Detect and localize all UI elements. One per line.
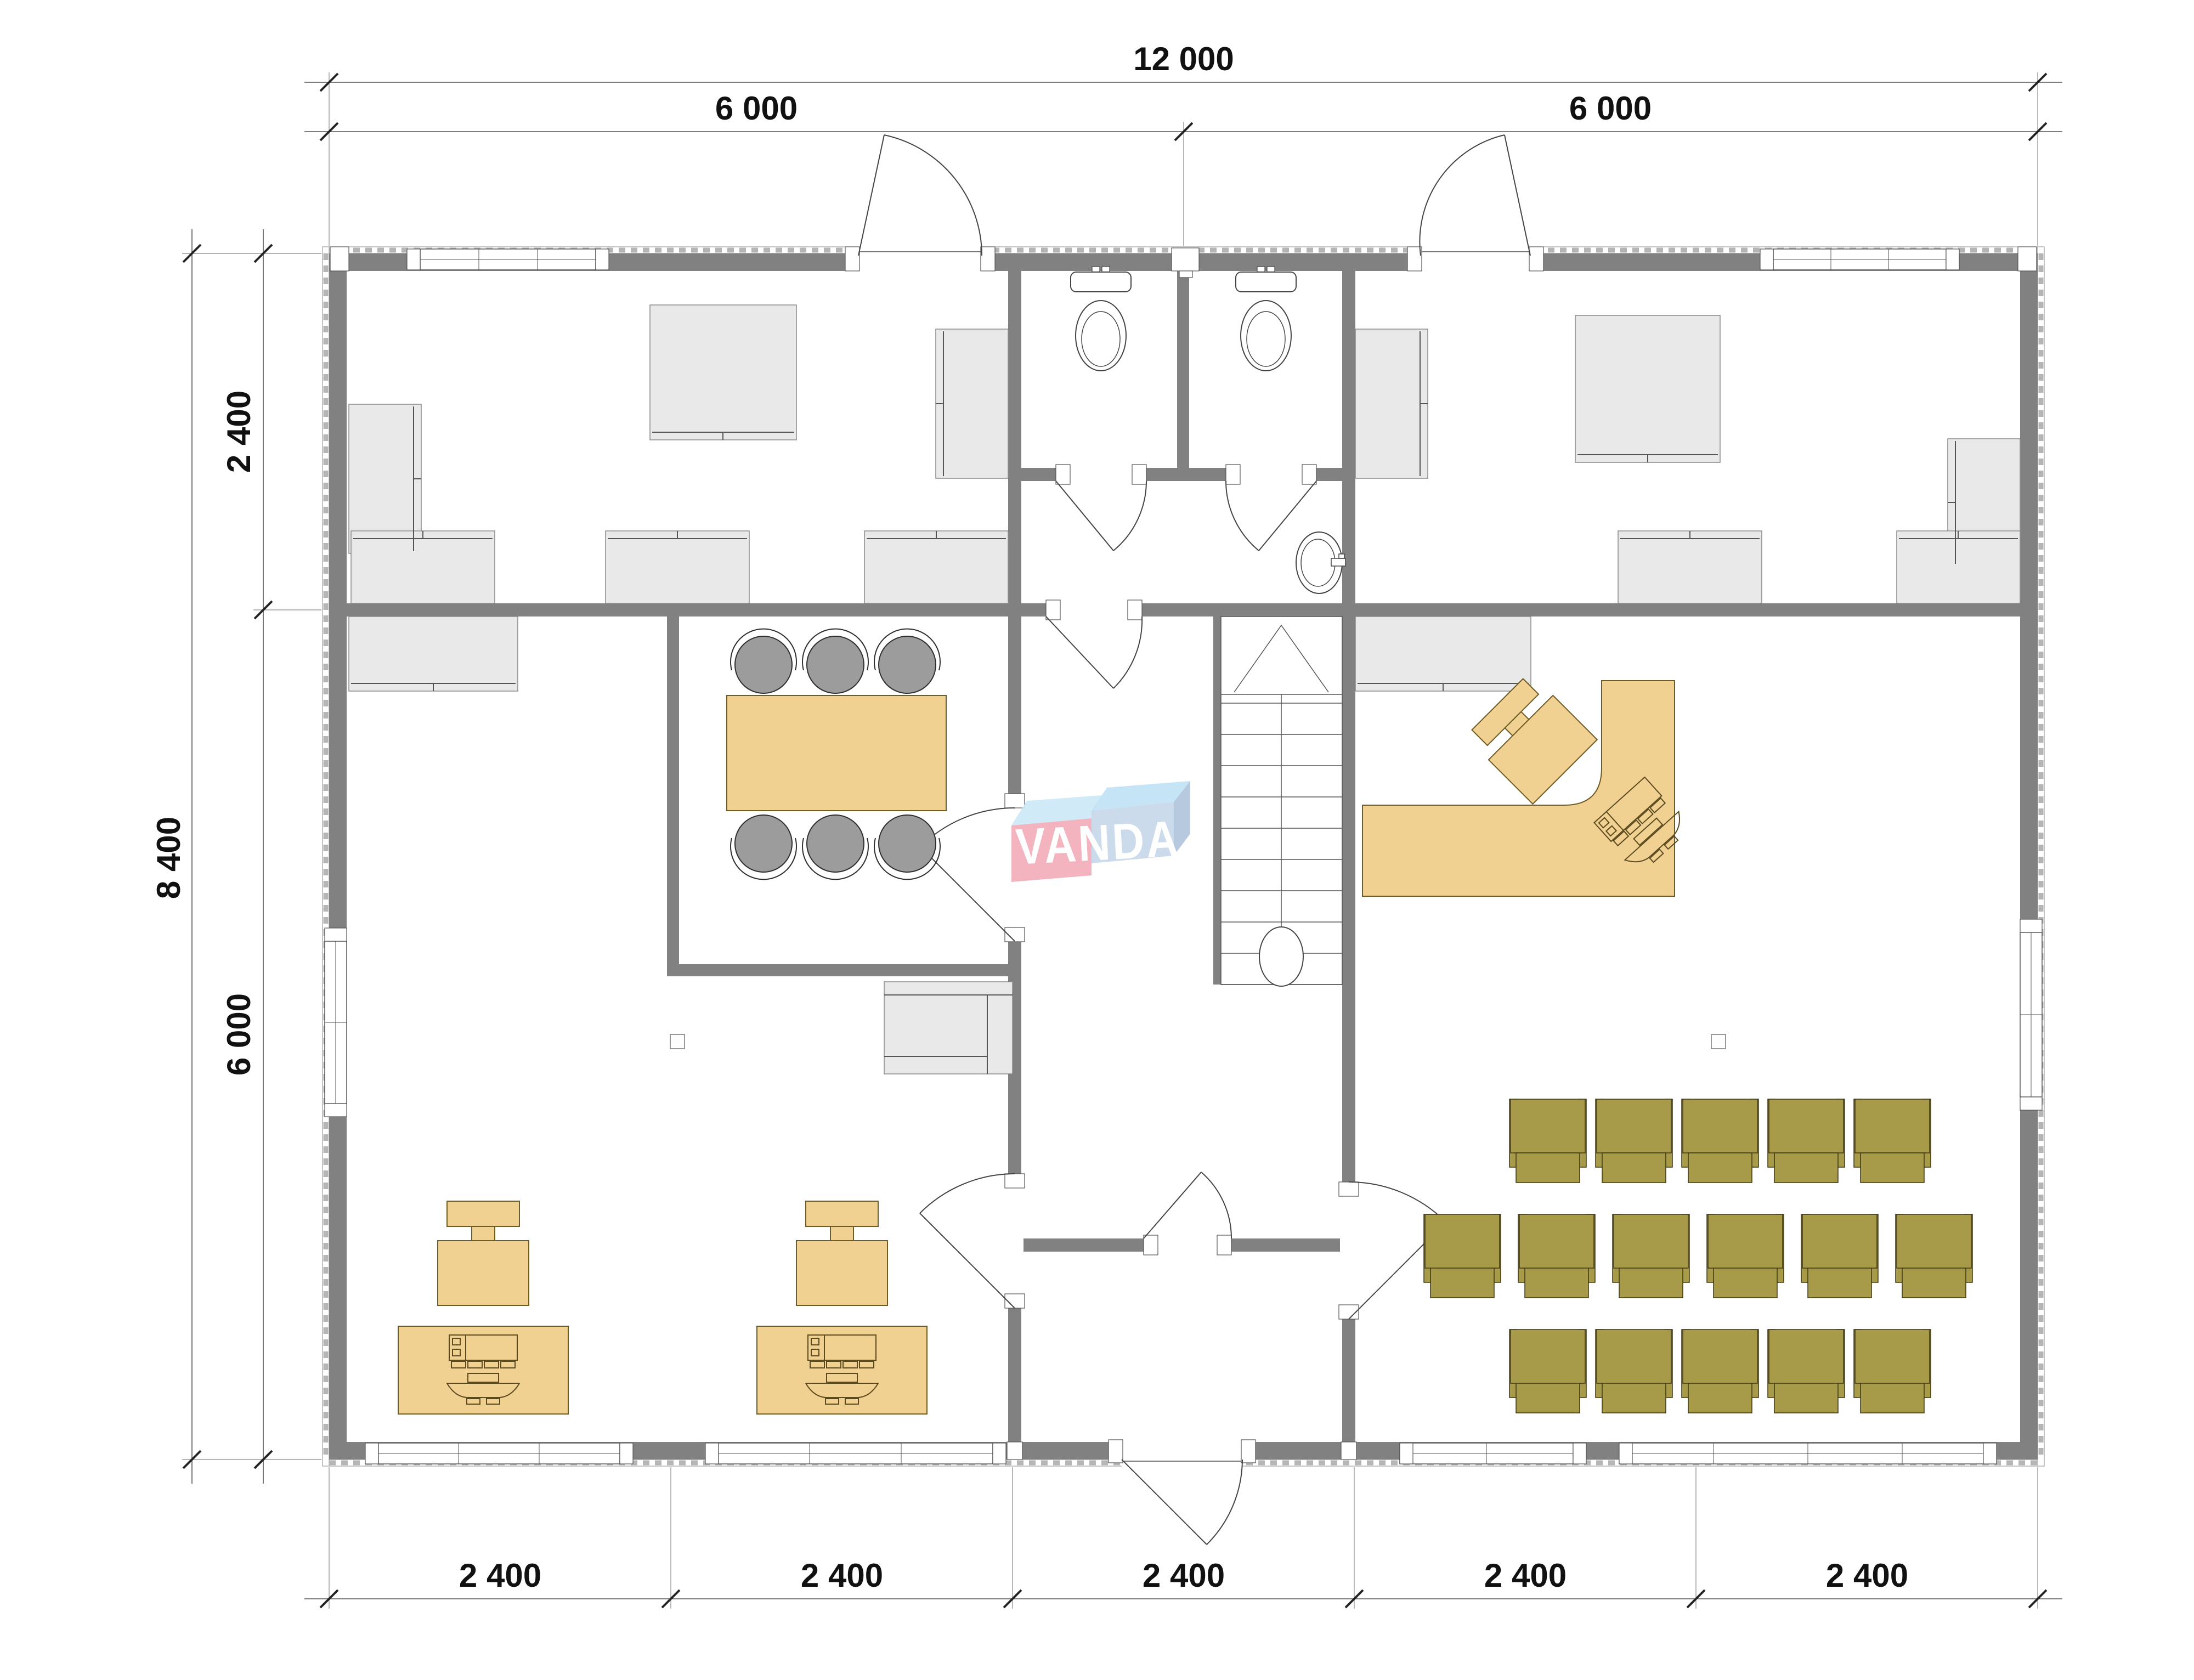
wall-left <box>329 253 347 1460</box>
stairs <box>1221 616 1342 986</box>
audience-chair <box>1682 1099 1758 1183</box>
door-exterior-left-office <box>858 135 982 256</box>
door-exterior-right-office <box>1420 135 1530 256</box>
dim-top-total: 12 000 <box>1133 41 1234 77</box>
chair-backrest <box>1511 1099 1585 1153</box>
watermark: VANDA <box>1011 781 1190 882</box>
dim-bottom-5: 2 400 <box>1826 1557 1908 1594</box>
chair-backrest <box>1769 1330 1844 1383</box>
chair-seat <box>1619 1268 1683 1298</box>
desk <box>398 1326 568 1414</box>
audience-chair <box>1596 1330 1672 1413</box>
chair-backrest <box>1802 1214 1877 1268</box>
chair-seat <box>1808 1268 1871 1298</box>
desk <box>864 531 1008 603</box>
door-left-room <box>920 1174 1015 1308</box>
chair-seat <box>438 1241 529 1305</box>
door-wc-left <box>1056 481 1146 551</box>
meeting-chair <box>802 629 868 693</box>
audience-chair <box>1801 1214 1878 1298</box>
stair-landing-post <box>1259 927 1303 986</box>
desk <box>349 616 518 691</box>
desk <box>351 531 495 603</box>
dim-top-right: 6 000 <box>1569 90 1652 127</box>
desk <box>606 531 749 603</box>
sink <box>1296 532 1345 593</box>
chair-seat <box>1516 1153 1580 1183</box>
dim-bottom-3: 2 400 <box>1143 1557 1225 1594</box>
computer-workstations <box>398 1201 927 1414</box>
audience-chair <box>1613 1214 1689 1298</box>
toilet <box>1236 267 1296 371</box>
chair-seat <box>1774 1383 1838 1413</box>
meeting-chair <box>874 815 940 879</box>
desk <box>650 305 796 440</box>
watermark-text: VANDA <box>1014 811 1181 875</box>
dim-bottom-2: 2 400 <box>801 1557 883 1594</box>
floor-plan-sheet: VANDA 12 000 6 000 6 000 8 400 2 400 6 <box>0 0 2194 1680</box>
audience-chair <box>1768 1330 1845 1413</box>
wall-wc-middle <box>1177 271 1189 481</box>
audience-chair <box>1509 1099 1586 1183</box>
chair-seat <box>1774 1153 1838 1183</box>
audience-chair <box>1854 1330 1931 1413</box>
chair-seat <box>1861 1383 1924 1413</box>
chair-seat <box>1516 1383 1580 1413</box>
chair-backrest <box>1855 1099 1930 1153</box>
meeting-table <box>727 695 946 811</box>
door-lobby-hall <box>1046 616 1142 688</box>
audience-chair <box>1682 1330 1758 1413</box>
reception-chair <box>1465 672 1597 804</box>
chair-backrest <box>1708 1214 1783 1268</box>
chair-seat <box>1714 1268 1777 1298</box>
chair-seat <box>1430 1268 1494 1298</box>
audience-chair <box>1896 1214 1972 1298</box>
wall-meeting-bottom <box>667 964 1021 976</box>
audience-chair <box>1509 1330 1586 1413</box>
chair-backrest <box>1683 1330 1757 1383</box>
desk <box>1897 531 2020 603</box>
audience-chair <box>1707 1214 1784 1298</box>
chair-seat <box>1602 1383 1666 1413</box>
meeting-chair <box>731 629 796 693</box>
chair-backrest <box>1519 1214 1594 1268</box>
wall-mid-horizontal <box>347 603 2020 616</box>
dim-bottom-1: 2 400 <box>459 1557 541 1594</box>
desk <box>757 1326 927 1414</box>
chair-backrest <box>1511 1330 1585 1383</box>
chair-seat <box>1688 1383 1752 1413</box>
workstation <box>757 1201 927 1414</box>
chair-seat <box>1525 1268 1588 1298</box>
chair-backrest <box>806 1201 878 1226</box>
door-vestibule <box>1144 1172 1231 1238</box>
meeting-chair <box>802 815 868 879</box>
toilet <box>1071 267 1131 371</box>
audience-chair <box>1596 1099 1672 1183</box>
desk <box>936 329 1008 478</box>
audience-chair <box>1768 1099 1845 1183</box>
meeting-chair <box>731 815 796 879</box>
floor-plan-drawing: VANDA 12 000 6 000 6 000 8 400 2 400 6 <box>0 0 2194 1680</box>
desk <box>1618 531 1762 603</box>
chair-seat <box>796 1241 887 1305</box>
chair-seat <box>1688 1153 1752 1183</box>
chair-backrest <box>1597 1330 1671 1383</box>
chair-backrest <box>447 1201 519 1226</box>
wall-stair-thin <box>1213 616 1221 985</box>
audience-chair <box>1854 1099 1931 1183</box>
dim-left-lower: 6 000 <box>220 993 257 1076</box>
chair-stem <box>830 1226 853 1241</box>
chair-backrest <box>1769 1099 1844 1153</box>
meeting-chair <box>874 629 940 693</box>
cabinet <box>884 982 1013 1074</box>
stair-direction-arrow <box>1234 625 1328 692</box>
audience-chair-rows <box>1424 1099 1972 1413</box>
door-meeting-room <box>920 808 1015 941</box>
wall-right <box>2020 253 2038 1460</box>
door-main-entrance <box>1122 1460 1242 1545</box>
chair-seat <box>1861 1153 1924 1183</box>
chair-backrest <box>1897 1214 1971 1268</box>
workstation <box>398 1201 568 1414</box>
desk <box>1575 315 1720 462</box>
dim-bottom-4: 2 400 <box>1484 1557 1567 1594</box>
dim-left-upper: 2 400 <box>220 391 257 473</box>
dim-left-total: 8 400 <box>150 817 187 899</box>
floor-box <box>670 1034 685 1049</box>
floor-box <box>1711 1034 1726 1049</box>
chair-stem <box>472 1226 495 1241</box>
chair-backrest <box>1425 1214 1500 1268</box>
reception <box>1362 672 1693 896</box>
desk <box>1355 329 1428 478</box>
audience-chair <box>1518 1214 1595 1298</box>
chair-backrest <box>1614 1214 1688 1268</box>
chair-seat <box>1902 1268 1966 1298</box>
audience-chair <box>1424 1214 1501 1298</box>
wall-meeting-left <box>667 616 679 976</box>
chair-seat <box>1602 1153 1666 1183</box>
dim-top-left: 6 000 <box>715 90 798 127</box>
chair-backrest <box>1855 1330 1930 1383</box>
chair-backrest <box>1683 1099 1757 1153</box>
chair-backrest <box>1597 1099 1671 1153</box>
desk <box>1355 616 1531 691</box>
